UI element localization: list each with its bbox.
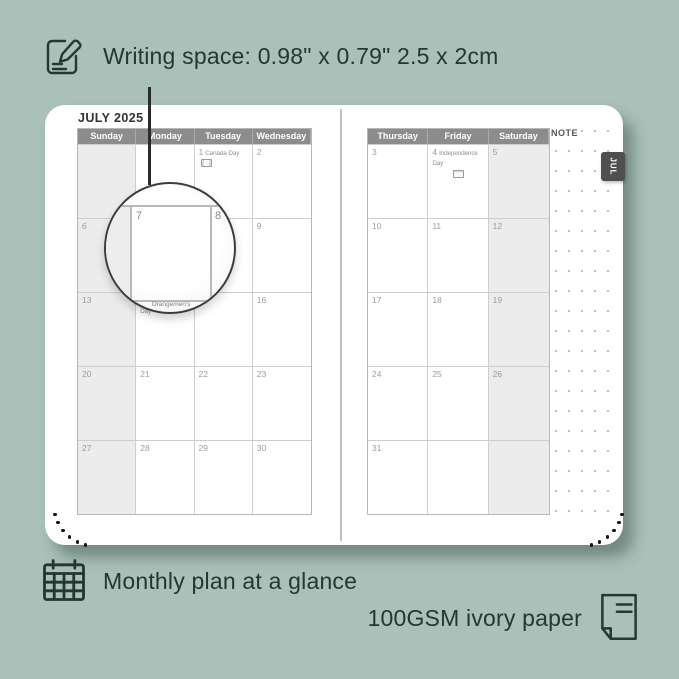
note-dot bbox=[594, 190, 596, 192]
lens-day-7: 7 bbox=[136, 210, 142, 222]
calendar-cell-3: 3 bbox=[368, 144, 428, 218]
calendar-cell-4: 4Independence Day bbox=[428, 144, 488, 218]
note-dot bbox=[594, 230, 596, 232]
note-dot bbox=[594, 450, 596, 452]
date-number: 21 bbox=[140, 369, 149, 379]
ca-flag-icon bbox=[201, 159, 212, 167]
note-dot bbox=[594, 290, 596, 292]
date-number: 17 bbox=[372, 295, 381, 305]
lens-gridline bbox=[106, 205, 234, 207]
note-dot bbox=[594, 170, 596, 172]
calendar-cell bbox=[428, 440, 488, 514]
month-tab-label: JUL bbox=[609, 157, 618, 175]
calendar-cell-23: 23 bbox=[253, 366, 311, 440]
date-number: 24 bbox=[372, 369, 381, 379]
calendar-cell-20: 20 bbox=[78, 366, 136, 440]
day-header-monday: Monday bbox=[136, 129, 194, 144]
note-dot bbox=[568, 450, 570, 452]
date-number: 10 bbox=[372, 221, 381, 231]
calendar-cell-28: 28 bbox=[136, 440, 194, 514]
note-dot bbox=[594, 270, 596, 272]
magnifier-lens: 7 8 Orangemen's bbox=[104, 182, 236, 314]
note-dot bbox=[555, 210, 557, 212]
date-number: 18 bbox=[432, 295, 441, 305]
date-number: 12 bbox=[493, 221, 502, 231]
note-dot bbox=[555, 350, 557, 352]
calendar-grid-icon bbox=[38, 554, 90, 606]
note-dot bbox=[555, 250, 557, 252]
date-number: 11 bbox=[432, 221, 441, 231]
note-dot bbox=[581, 390, 583, 392]
note-dot bbox=[607, 330, 609, 332]
note-dot bbox=[555, 230, 557, 232]
calendar-cell-5: 5 bbox=[489, 144, 549, 218]
note-dot bbox=[568, 370, 570, 372]
calendar-cell-29: 29 bbox=[195, 440, 253, 514]
note-dot bbox=[581, 450, 583, 452]
note-dot bbox=[607, 450, 609, 452]
calendar-cell-16: 16 bbox=[253, 292, 311, 366]
date-number: 30 bbox=[257, 443, 266, 453]
note-dot bbox=[581, 510, 583, 512]
lens-holiday-text: Orangemen's bbox=[130, 301, 212, 308]
callout-line bbox=[148, 87, 151, 185]
right-calendar-grid: ThursdayFridaySaturday34Independence Day… bbox=[367, 128, 550, 515]
perforation-dot bbox=[590, 543, 593, 546]
calendar-cell-2: 2 bbox=[253, 144, 311, 218]
calendar-cell-27: 27 bbox=[78, 440, 136, 514]
note-dot bbox=[607, 270, 609, 272]
calendar-cell-18: 18 bbox=[428, 292, 488, 366]
note-dot bbox=[607, 310, 609, 312]
note-dot bbox=[555, 410, 557, 412]
note-dot bbox=[581, 130, 583, 132]
note-dot bbox=[568, 310, 570, 312]
note-dot bbox=[581, 210, 583, 212]
note-dot bbox=[607, 370, 609, 372]
note-dot bbox=[607, 490, 609, 492]
date-number: 28 bbox=[140, 443, 149, 453]
us-flag-icon bbox=[453, 170, 464, 178]
day-header-wednesday: Wednesday bbox=[253, 129, 311, 144]
calendar-cell-12: 12 bbox=[489, 218, 549, 292]
date-number: 27 bbox=[82, 443, 91, 453]
date-number: 3 bbox=[372, 147, 377, 157]
date-number: 13 bbox=[82, 295, 91, 305]
note-dot bbox=[555, 450, 557, 452]
writing-space-annotation: Writing space: 0.98" x 0.79" 2.5 x 2cm bbox=[103, 43, 499, 70]
date-number: 22 bbox=[199, 369, 208, 379]
page-spine bbox=[340, 109, 342, 541]
calendar-cell-21: 21 bbox=[136, 366, 194, 440]
note-dot bbox=[607, 230, 609, 232]
day-header-friday: Friday bbox=[428, 129, 488, 144]
note-label: NOTE bbox=[551, 128, 578, 138]
note-dot bbox=[594, 390, 596, 392]
day-header-sunday: Sunday bbox=[78, 129, 136, 144]
calendar-cell-13: 13 bbox=[78, 292, 136, 366]
note-pencil-icon bbox=[40, 33, 88, 81]
note-dot bbox=[568, 190, 570, 192]
day-header-tuesday: Tuesday bbox=[195, 129, 253, 144]
note-dot bbox=[568, 350, 570, 352]
date-number: 6 bbox=[82, 221, 87, 231]
holiday-label: Independence Day bbox=[432, 150, 477, 167]
note-dot bbox=[555, 490, 557, 492]
note-dot bbox=[555, 390, 557, 392]
lens-gridline bbox=[210, 205, 212, 301]
perforation-dot bbox=[76, 540, 79, 543]
lens-gridline bbox=[130, 205, 132, 301]
date-number: 9 bbox=[257, 221, 262, 231]
note-dot bbox=[568, 510, 570, 512]
note-dot bbox=[568, 470, 570, 472]
note-dot bbox=[594, 310, 596, 312]
note-dot bbox=[581, 150, 583, 152]
note-dot bbox=[607, 390, 609, 392]
month-title: JULY 2025 bbox=[78, 111, 143, 125]
note-dot bbox=[581, 410, 583, 412]
date-number: 31 bbox=[372, 443, 381, 453]
calendar-cell-9: 9 bbox=[253, 218, 311, 292]
date-number: 25 bbox=[432, 369, 441, 379]
note-dot bbox=[568, 430, 570, 432]
note-dot bbox=[568, 250, 570, 252]
note-dot bbox=[607, 290, 609, 292]
note-dot bbox=[594, 470, 596, 472]
note-dot bbox=[555, 190, 557, 192]
date-number: 20 bbox=[82, 369, 91, 379]
calendar-cell-30: 30 bbox=[253, 440, 311, 514]
note-dot bbox=[581, 270, 583, 272]
note-dot bbox=[568, 490, 570, 492]
calendar-cell-22: 22 bbox=[195, 366, 253, 440]
note-dot bbox=[607, 250, 609, 252]
note-dot bbox=[594, 330, 596, 332]
note-dot bbox=[555, 170, 557, 172]
calendar-cell-24: 24 bbox=[368, 366, 428, 440]
note-dot bbox=[594, 250, 596, 252]
note-dot bbox=[555, 310, 557, 312]
paper-sheet-icon bbox=[594, 591, 644, 645]
note-dot bbox=[581, 470, 583, 472]
perforation-dot bbox=[84, 543, 87, 546]
note-dot bbox=[581, 230, 583, 232]
note-dot bbox=[607, 470, 609, 472]
paper-annotation: 100GSM ivory paper bbox=[300, 605, 582, 632]
note-dot bbox=[607, 430, 609, 432]
note-dot bbox=[568, 210, 570, 212]
note-dot bbox=[581, 370, 583, 372]
date-number: 16 bbox=[257, 295, 266, 305]
monthly-plan-annotation: Monthly plan at a glance bbox=[103, 568, 357, 595]
note-dot bbox=[568, 150, 570, 152]
perforation-dot bbox=[606, 535, 609, 538]
note-dot bbox=[555, 370, 557, 372]
note-dot bbox=[555, 290, 557, 292]
note-dot bbox=[594, 370, 596, 372]
note-dot bbox=[555, 430, 557, 432]
perforation-dot bbox=[620, 513, 623, 516]
day-header-thursday: Thursday bbox=[368, 129, 428, 144]
note-dot bbox=[594, 130, 596, 132]
date-number: 5 bbox=[493, 147, 498, 157]
perforation-dot bbox=[68, 535, 71, 538]
note-dot bbox=[581, 350, 583, 352]
day-header-saturday: Saturday bbox=[489, 129, 549, 144]
note-dot bbox=[594, 410, 596, 412]
calendar-cell bbox=[489, 440, 549, 514]
note-dot bbox=[568, 410, 570, 412]
note-dot bbox=[581, 330, 583, 332]
perforation-dot bbox=[53, 513, 56, 516]
note-dot bbox=[568, 270, 570, 272]
note-dot bbox=[568, 390, 570, 392]
calendar-cell-19: 19 bbox=[489, 292, 549, 366]
note-dot bbox=[581, 170, 583, 172]
note-dot bbox=[568, 170, 570, 172]
note-dot bbox=[568, 230, 570, 232]
date-number: 1 bbox=[199, 147, 204, 157]
perforation-dot bbox=[612, 529, 615, 532]
note-dot bbox=[607, 510, 609, 512]
note-dot bbox=[581, 250, 583, 252]
note-dot bbox=[594, 350, 596, 352]
note-dot bbox=[607, 130, 609, 132]
calendar-cell-26: 26 bbox=[489, 366, 549, 440]
calendar-cell-10: 10 bbox=[368, 218, 428, 292]
note-dot bbox=[594, 150, 596, 152]
note-dot bbox=[568, 290, 570, 292]
date-number: 23 bbox=[257, 369, 266, 379]
note-dot bbox=[607, 410, 609, 412]
note-column: NOTE bbox=[551, 128, 617, 516]
lens-day-8: 8 bbox=[215, 210, 221, 222]
note-dot bbox=[607, 210, 609, 212]
planner-book: JULY 2025 SundayMondayTuesdayWednesday1C… bbox=[45, 105, 623, 545]
note-dot bbox=[607, 350, 609, 352]
calendar-cell-17: 17 bbox=[368, 292, 428, 366]
month-tab: JUL bbox=[601, 152, 625, 181]
date-number: 2 bbox=[257, 147, 262, 157]
date-number: 26 bbox=[493, 369, 502, 379]
note-dot bbox=[581, 190, 583, 192]
calendar-cell-25: 25 bbox=[428, 366, 488, 440]
note-dot bbox=[581, 310, 583, 312]
date-number: 29 bbox=[199, 443, 208, 453]
calendar-cell-31: 31 bbox=[368, 440, 428, 514]
note-dot bbox=[581, 490, 583, 492]
note-dot bbox=[555, 270, 557, 272]
lens-weekend-shade bbox=[106, 205, 131, 301]
note-dot bbox=[594, 210, 596, 212]
note-dot bbox=[594, 510, 596, 512]
note-dot bbox=[594, 490, 596, 492]
note-dot bbox=[607, 190, 609, 192]
note-dot bbox=[594, 430, 596, 432]
date-number: 4 bbox=[432, 147, 437, 157]
note-dot bbox=[555, 510, 557, 512]
note-dot bbox=[581, 290, 583, 292]
holiday-label: Canada Day bbox=[205, 150, 239, 157]
note-dot bbox=[581, 430, 583, 432]
note-dot bbox=[555, 470, 557, 472]
calendar-cell-11: 11 bbox=[428, 218, 488, 292]
perforation-dot bbox=[61, 529, 64, 532]
note-dot bbox=[555, 330, 557, 332]
note-dot bbox=[568, 330, 570, 332]
date-number: 19 bbox=[493, 295, 502, 305]
note-dot bbox=[555, 150, 557, 152]
